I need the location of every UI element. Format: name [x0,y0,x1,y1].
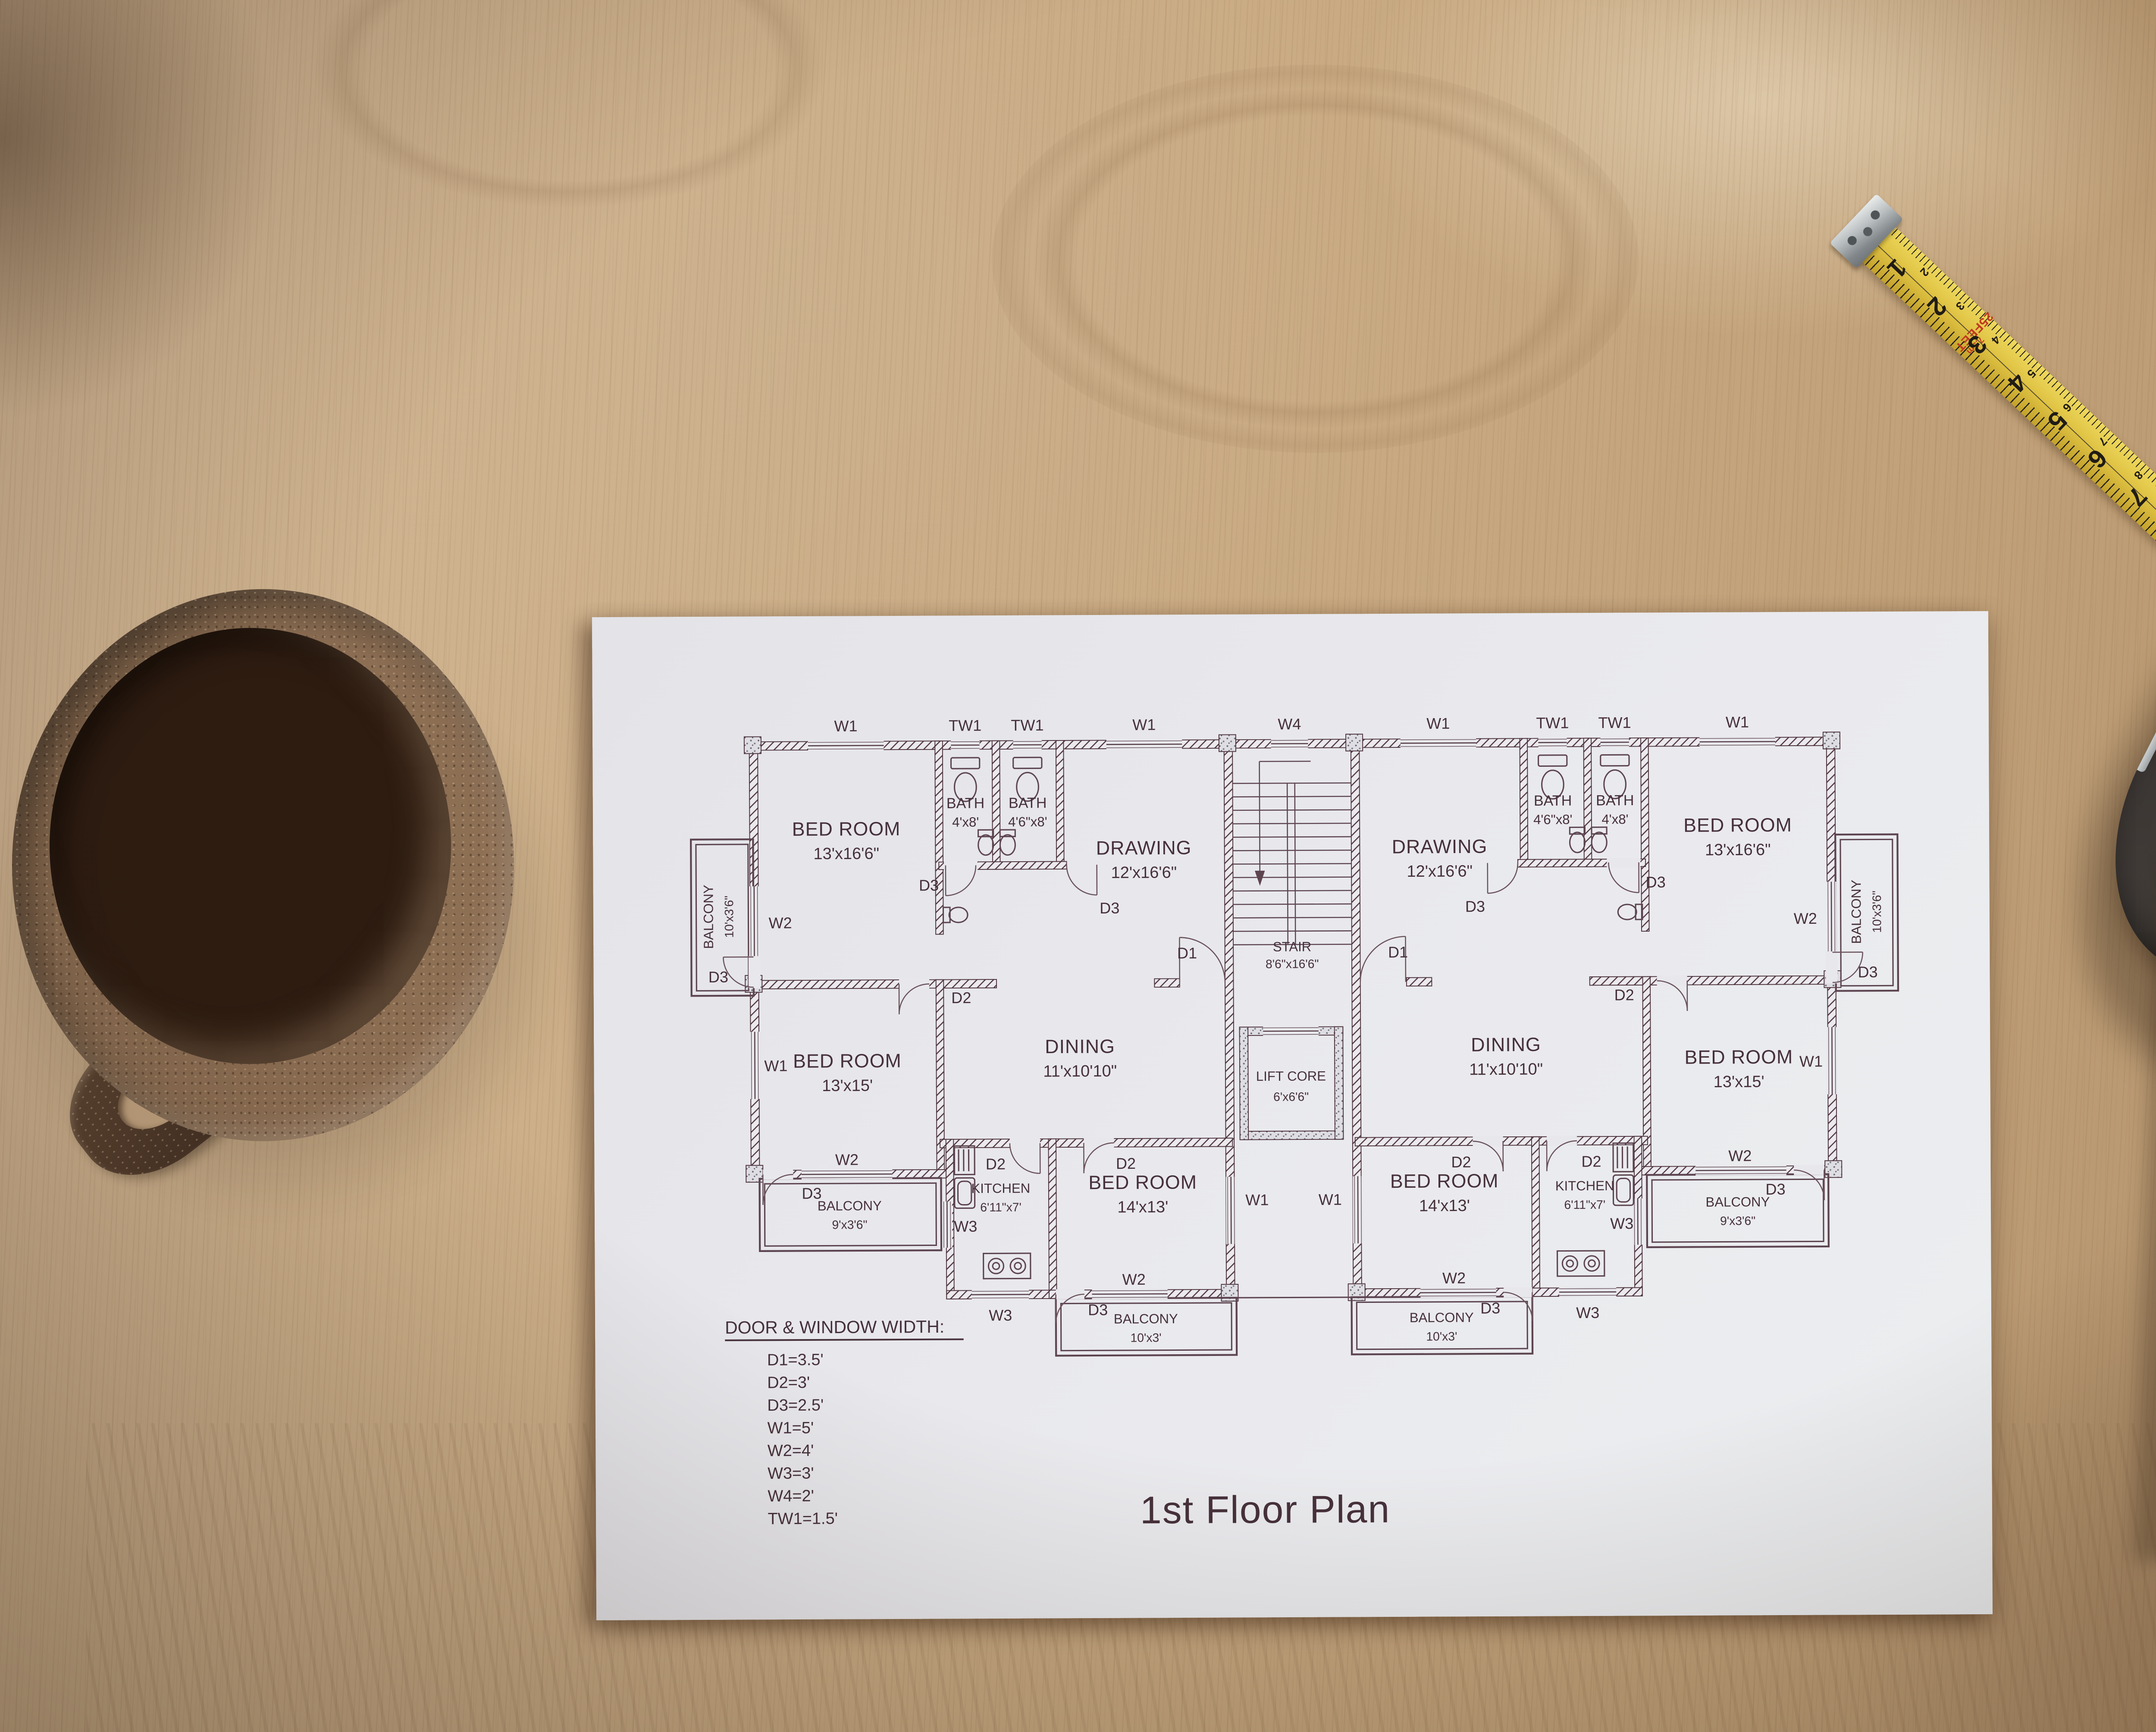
photo-floorplan-desk: { "plan": { "title": "1st Floor Plan", "… [0,0,2156,1732]
photo-vignette [0,0,2156,1732]
